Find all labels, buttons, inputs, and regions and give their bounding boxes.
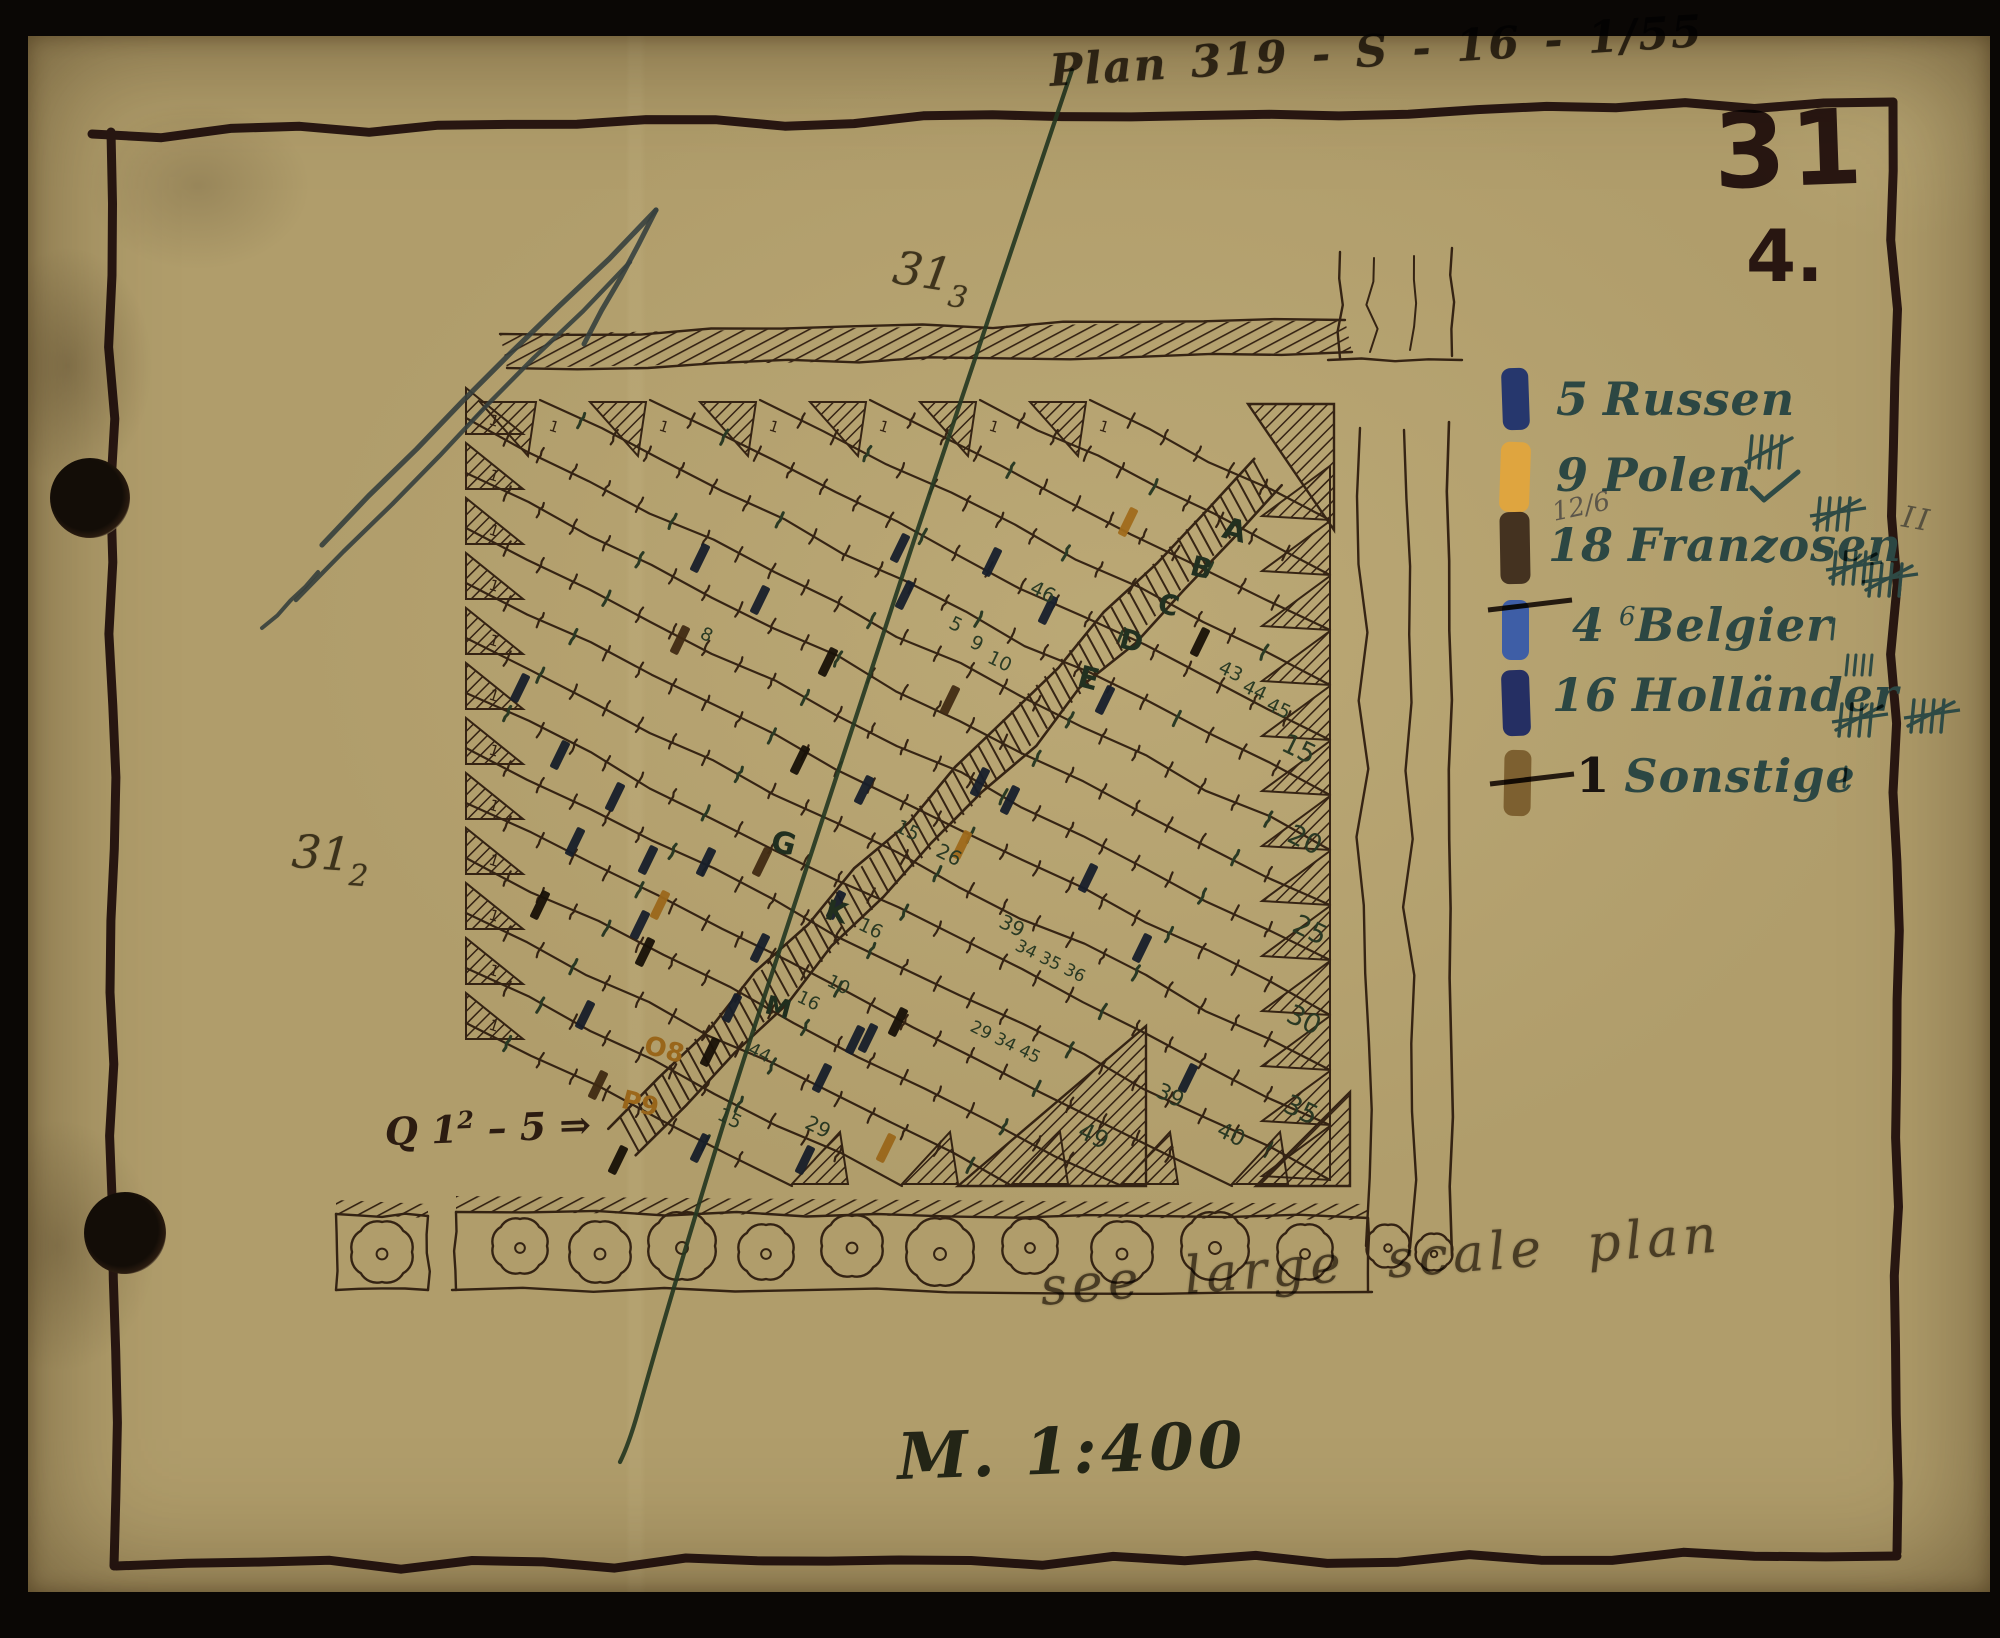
legend-swatch-franzosen — [1499, 512, 1530, 585]
legend: 5Russen9Polen18Franzosen12/6II46Belgier1… — [0, 0, 2000, 1638]
legend-count-sup: 6 — [1619, 602, 1636, 632]
legend-label: Belgier — [1636, 598, 1832, 652]
tally-five-struck-icon — [1864, 558, 1920, 602]
legend-swatch-russen — [1501, 368, 1530, 431]
legend-swatch-holländer — [1501, 670, 1531, 737]
legend-label: Polen — [1603, 448, 1752, 502]
legend-item-sonstige: 1Sonstige — [1576, 748, 1856, 804]
single-tick-icon — [1828, 616, 1844, 642]
legend-count: 16 — [1552, 668, 1618, 722]
punch-hole-top — [50, 458, 130, 538]
scanned-plan-page: 111111111111111111 ABCDEGKMO8P9465910434… — [0, 0, 2000, 1638]
tally-five-struck-icon — [1906, 694, 1962, 738]
four-ticks-icon — [1842, 652, 1882, 678]
checkmark-icon — [1748, 468, 1808, 508]
legend-item-belgier: 46Belgier — [1572, 598, 1831, 652]
tally-five-struck-icon — [1812, 492, 1868, 536]
legend-swatch-polen — [1499, 441, 1531, 512]
punch-hole-bottom — [84, 1192, 166, 1274]
outside-tick-marks: II — [1899, 500, 1934, 540]
swatch-strike-line — [1490, 770, 1590, 790]
tally-five-struck-icon — [1834, 698, 1890, 742]
legend-label: Russen — [1603, 372, 1795, 426]
swatch-strike-line — [1488, 596, 1588, 616]
legend-item-russen: 5Russen — [1556, 372, 1795, 426]
single-tick-icon — [1840, 764, 1856, 790]
legend-count: 5 — [1556, 372, 1589, 426]
legend-label: Sonstige — [1624, 749, 1855, 803]
